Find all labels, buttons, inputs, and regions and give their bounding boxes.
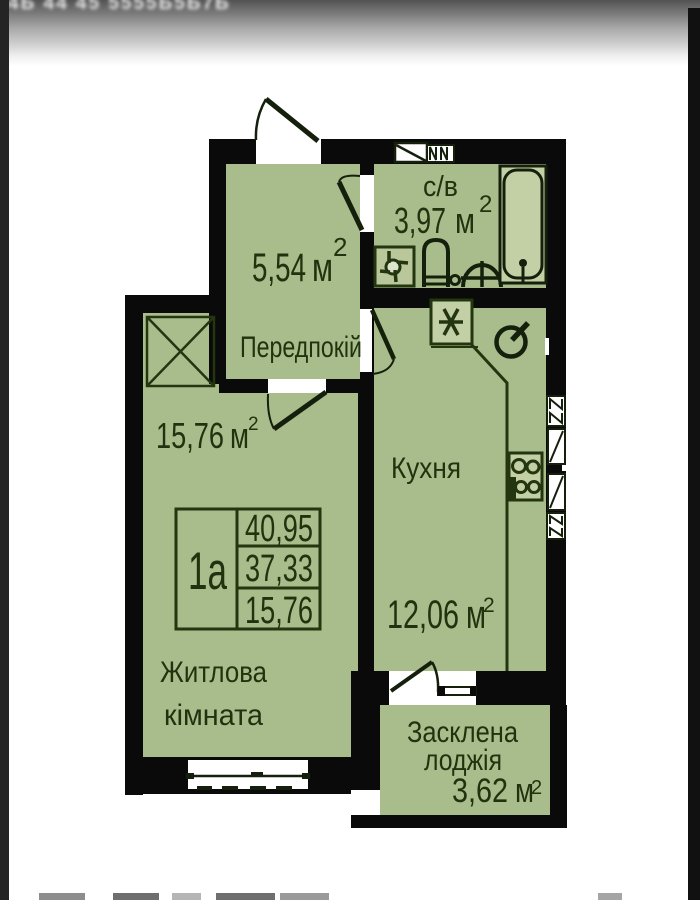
svg-text:м: м — [312, 246, 333, 290]
svg-text:40,95: 40,95 — [245, 508, 313, 550]
svg-text:2: 2 — [248, 414, 259, 435]
svg-text:15,76: 15,76 — [156, 415, 224, 456]
svg-text:12,06: 12,06 — [387, 593, 459, 637]
svg-text:3,97: 3,97 — [394, 200, 446, 241]
svg-text:1а: 1а — [188, 542, 227, 601]
svg-text:5,54: 5,54 — [252, 246, 306, 290]
svg-text:Кухня: Кухня — [391, 452, 461, 485]
svg-text:2: 2 — [483, 594, 495, 617]
svg-text:Житлова: Житлова — [160, 656, 267, 689]
svg-text:2: 2 — [479, 191, 492, 218]
svg-text:15,76: 15,76 — [245, 590, 313, 632]
svg-text:Передпокій: Передпокій — [240, 331, 362, 364]
svg-text:3,62: 3,62 — [452, 772, 508, 810]
svg-text:с/в: с/в — [423, 171, 458, 203]
svg-text:м: м — [230, 415, 249, 456]
svg-text:2: 2 — [531, 777, 542, 799]
svg-text:2: 2 — [333, 232, 347, 262]
svg-text:кімната: кімната — [164, 699, 263, 732]
svg-text:37,33: 37,33 — [245, 548, 313, 590]
svg-text:м: м — [455, 200, 475, 241]
